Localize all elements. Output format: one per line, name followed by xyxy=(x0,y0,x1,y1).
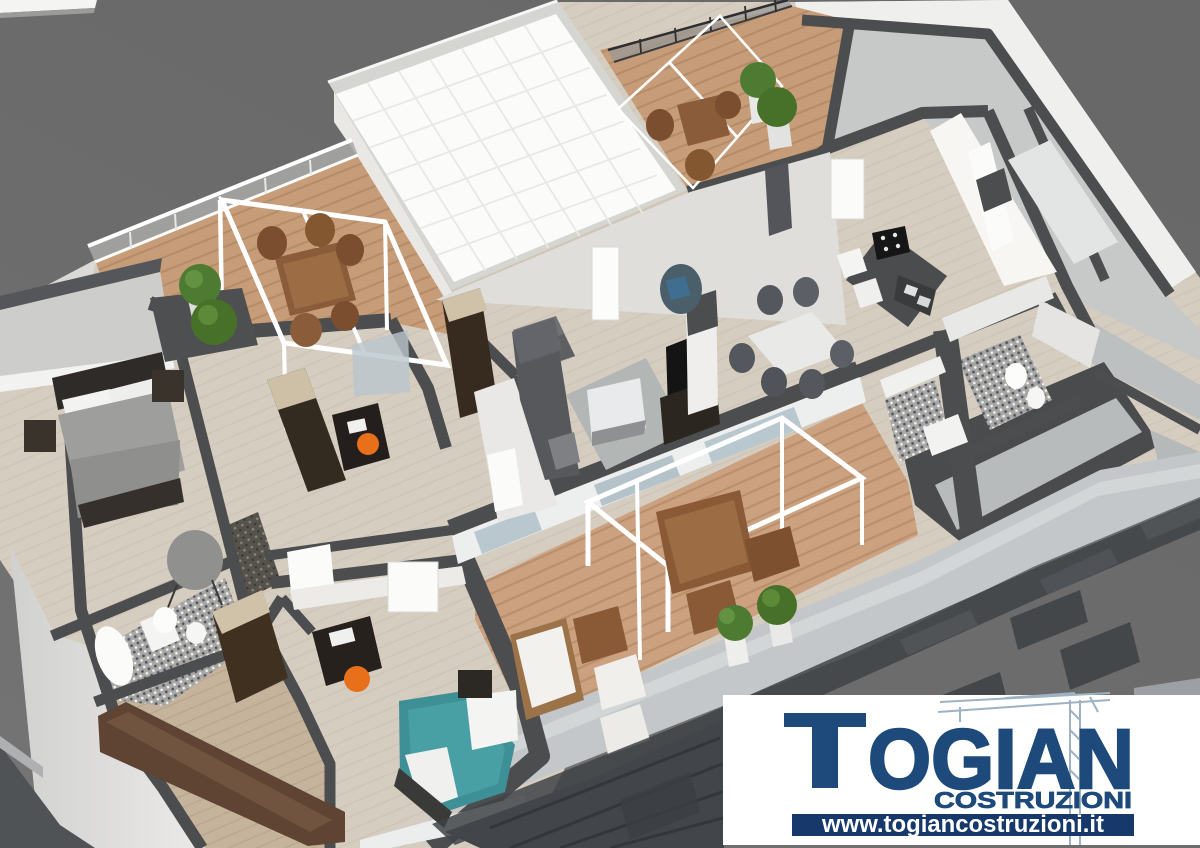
svg-text:COSTRUZIONI: COSTRUZIONI xyxy=(934,787,1132,813)
svg-text:www.togiancostruzioni.it: www.togiancostruzioni.it xyxy=(821,811,1104,838)
